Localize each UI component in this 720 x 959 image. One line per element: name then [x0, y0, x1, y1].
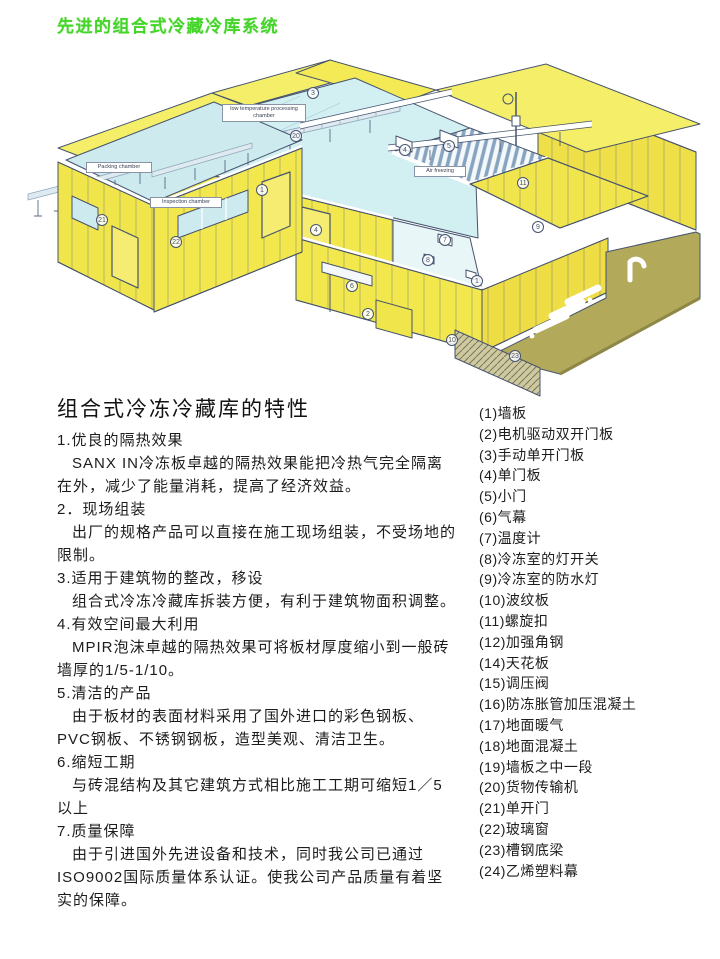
text-block: 组合式冷冻冷藏库的特性 1.优良的隔热效果SANX IN冷冻板卓越的隔热效果能把… — [57, 393, 697, 912]
part-item: (5)小门 — [479, 486, 697, 507]
chamber-label: Packing chamber — [86, 162, 152, 173]
chamber-label: Air freezing — [414, 166, 466, 177]
feature-body: MPIR泡沫卓越的隔热效果可将板材厚度缩小到一般砖墙厚的1/5-1/10。 — [57, 636, 457, 682]
feature-item: 2．现场组装出厂的规格产品可以直接在施工现场组装，不受场地的限制。 — [57, 498, 457, 567]
part-marker: 23 — [509, 350, 521, 362]
part-item: (24)乙烯塑料幕 — [479, 861, 697, 882]
part-marker: 22 — [170, 236, 182, 248]
part-marker: 2 — [362, 308, 374, 320]
part-marker: 5 — [443, 140, 455, 152]
feature-body: 组合式冷冻冷藏库拆装方便，有利于建筑物面积调整。 — [57, 590, 457, 613]
feature-title: 1.优良的隔热效果 — [57, 429, 457, 452]
part-marker: 11 — [517, 177, 529, 189]
part-item: (11)螺旋扣 — [479, 611, 697, 632]
section-heading: 组合式冷冻冷藏库的特性 — [57, 393, 457, 423]
feature-body: 由于板材的表面材料采用了国外进口的彩色钢板、PVC钢板、不锈钢钢板，造型美观、清… — [57, 705, 457, 751]
part-item: (18)地面混凝土 — [479, 736, 697, 757]
chamber-label: Inspection chamber — [150, 197, 222, 208]
chamber-label: low temperature processing chamber — [222, 104, 306, 122]
feature-item: 5.清洁的产品由于板材的表面材料采用了国外进口的彩色钢板、PVC钢板、不锈钢钢板… — [57, 682, 457, 751]
feature-title: 5.清洁的产品 — [57, 682, 457, 705]
part-item: (21)单开门 — [479, 798, 697, 819]
part-item: (19)墙板之中一段 — [479, 757, 697, 778]
feature-item: 4.有效空间最大利用MPIR泡沫卓越的隔热效果可将板材厚度缩小到一般砖墙厚的1/… — [57, 613, 457, 682]
part-item: (1)墙板 — [479, 403, 697, 424]
part-marker: 4 — [399, 144, 411, 156]
feature-title: 6.缩短工期 — [57, 751, 457, 774]
part-marker: 20 — [290, 130, 302, 142]
cold-storage-isometric-illustration: Packing chamberInspection chamberlow tem… — [0, 55, 720, 400]
part-item: (7)温度计 — [479, 528, 697, 549]
part-marker: 10 — [446, 334, 458, 346]
features-list: 1.优良的隔热效果SANX IN冷冻板卓越的隔热效果能把冷热气完全隔离在外，减少… — [57, 429, 457, 912]
part-marker: 4 — [310, 224, 322, 236]
part-item: (9)冷冻室的防水灯 — [479, 569, 697, 590]
part-item: (22)玻璃窗 — [479, 819, 697, 840]
feature-body: SANX IN冷冻板卓越的隔热效果能把冷热气完全隔离在外，减少了能量消耗，提高了… — [57, 452, 457, 498]
part-item: (4)单门板 — [479, 465, 697, 486]
part-item: (20)货物传输机 — [479, 777, 697, 798]
part-item: (3)手动单开门板 — [479, 445, 697, 466]
part-item: (14)天花板 — [479, 653, 697, 674]
part-item: (2)电机驱动双开门板 — [479, 424, 697, 445]
feature-item: 6.缩短工期与砖混结构及其它建筑方式相比施工工期可缩短1／5以上 — [57, 751, 457, 820]
part-marker: 1 — [471, 275, 483, 287]
part-marker: 1 — [256, 184, 268, 196]
part-marker: 3 — [307, 87, 319, 99]
part-marker: 8 — [422, 254, 434, 266]
part-item: (6)气幕 — [479, 507, 697, 528]
feature-title: 7.质量保障 — [57, 820, 457, 843]
features-section: 组合式冷冻冷藏库的特性 1.优良的隔热效果SANX IN冷冻板卓越的隔热效果能把… — [57, 393, 457, 912]
feature-item: 7.质量保障由于引进国外先进设备和技术，同时我公司已通过ISO9002国际质量体… — [57, 820, 457, 912]
parts-list: (1)墙板(2)电机驱动双开门板(3)手动单开门板(4)单门板(5)小门(6)气… — [479, 393, 697, 912]
brochure-page: { "page_title": "先进的组合式冷藏冷库系统", "section… — [0, 0, 720, 959]
part-item: (10)波纹板 — [479, 590, 697, 611]
page-title: 先进的组合式冷藏冷库系统 — [57, 12, 279, 37]
part-marker: 6 — [346, 280, 358, 292]
feature-title: 2．现场组装 — [57, 498, 457, 521]
part-item: (8)冷冻室的灯开关 — [479, 549, 697, 570]
part-item: (17)地面暖气 — [479, 715, 697, 736]
feature-title: 4.有效空间最大利用 — [57, 613, 457, 636]
part-item: (23)槽钢底梁 — [479, 840, 697, 861]
part-item: (15)调压阀 — [479, 673, 697, 694]
feature-body: 由于引进国外先进设备和技术，同时我公司已通过ISO9002国际质量体系认证。使我… — [57, 843, 457, 912]
part-marker: 7 — [439, 234, 451, 246]
feature-title: 3.适用于建筑物的整改，移设 — [57, 567, 457, 590]
part-marker: 21 — [96, 214, 108, 226]
part-marker: 9 — [532, 221, 544, 233]
part-item: (12)加强角钢 — [479, 632, 697, 653]
isometric-drawing — [0, 55, 720, 400]
feature-body: 出厂的规格产品可以直接在施工现场组装，不受场地的限制。 — [57, 521, 457, 567]
feature-item: 1.优良的隔热效果SANX IN冷冻板卓越的隔热效果能把冷热气完全隔离在外，减少… — [57, 429, 457, 498]
feature-body: 与砖混结构及其它建筑方式相比施工工期可缩短1／5以上 — [57, 774, 457, 820]
part-item: (16)防冻胀管加压混凝土 — [479, 694, 697, 715]
feature-item: 3.适用于建筑物的整改，移设组合式冷冻冷藏库拆装方便，有利于建筑物面积调整。 — [57, 567, 457, 613]
